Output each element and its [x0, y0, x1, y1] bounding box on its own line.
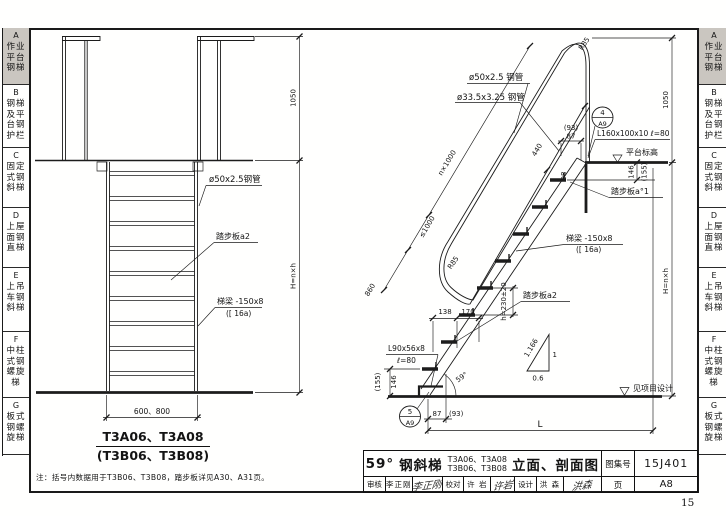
index-tab-letter: B [699, 88, 726, 98]
side-dim-base-offset-paren: (93) [449, 410, 464, 418]
index-tab-label: 作业平台钢梯 [6, 42, 27, 74]
index-tab-label: 板式钢螺旋梯 [6, 412, 27, 444]
index-tab-a: A 作业平台钢梯 [3, 28, 29, 85]
index-tab-f: F 中柱式钢螺旋梯 [699, 332, 726, 398]
index-tab-d: D 上屋面钢直梯 [3, 208, 29, 268]
index-tab-label: 固定式钢斜梯 [704, 162, 725, 194]
side-dim-step-going-2: 170 [461, 308, 474, 316]
index-tab-d: D 上屋面钢直梯 [699, 208, 726, 268]
side-dim-tread-width: 98 [560, 172, 568, 181]
side-dim-slope-total: n×1000 [437, 149, 458, 177]
index-tab-letter: E [3, 271, 29, 281]
sheet-title: 59° 钢斜梯 T3A06、T3A08 T3B06、T3B08 立面、剖面图 [364, 451, 602, 476]
index-tab-letter: F [3, 335, 29, 345]
side-dim-rail-height: 1050 [662, 91, 670, 109]
detail-ref-bottom-number: 5 [408, 408, 412, 416]
side-dim-base-offset: 87 [433, 410, 442, 418]
sheet-title-models-2: T3B06、T3B08 [448, 464, 507, 473]
front-dim-total-height: H=n×h [290, 263, 298, 289]
sheet-title-suffix: 立面、剖面图 [512, 454, 599, 474]
reviewer-name: 李正刚 [386, 477, 413, 492]
index-tab-e: E 上吊车钢斜梯 [3, 268, 29, 332]
index-tab-b: B 钢梯及平台钢护栏 [3, 85, 29, 148]
side-radius-bottom: R85 [446, 255, 460, 271]
side-dim-slope-bottom: 860 [363, 282, 377, 298]
detail-ref-bottom-sheet: A9 [406, 419, 415, 427]
side-base-angle-label-1: L90x56x8 [388, 344, 425, 353]
side-middle-rail-label: ø33.5x3.25 钢管 [457, 92, 525, 103]
index-tab-label: 上吊车钢斜梯 [6, 282, 27, 314]
sheet-title-product: 钢斜梯 [399, 454, 443, 474]
title-block: 59° 钢斜梯 T3A06、T3A08 T3B06、T3B08 立面、剖面图 图… [363, 450, 698, 493]
page-label: 页 [602, 477, 636, 492]
index-tab-e: E 上吊车钢斜梯 [699, 268, 726, 332]
front-handrail-pipe-label: ø50x2.5钢管 [209, 174, 261, 185]
left-page-index: A 作业平台钢梯 B 钢梯及平台钢护栏 C 固定式钢斜梯 D 上屋面钢直梯 E … [3, 28, 29, 455]
side-dim-total-height: H=n×h [662, 268, 670, 294]
side-ratio-hyp: 1.166 [523, 337, 540, 359]
index-tab-label: 钢梯及平台钢护栏 [704, 99, 725, 141]
detail-ref-top-sheet: A9 [598, 120, 607, 128]
designer-signature: 洪森 [564, 477, 602, 492]
side-handrail-pipe-label: ø50x2.5 钢管 [469, 72, 523, 83]
index-tab-letter: G [3, 401, 29, 411]
side-dim-step-going-1: 138 [438, 308, 451, 316]
index-tab-label: 作业平台钢梯 [704, 42, 725, 74]
index-tab-label: 上屋面钢直梯 [6, 222, 27, 254]
side-top-angle-label: L160x100x10 ℓ=80 [597, 129, 670, 138]
sheet-number: 15 [681, 497, 694, 509]
index-tab-a: A 作业平台钢梯 [699, 28, 726, 85]
index-tab-label: 上屋面钢直梯 [704, 222, 725, 254]
index-tab-letter: B [3, 88, 29, 98]
model-line-1: T3A06、T3A08 [96, 429, 209, 447]
side-dim-total-run: L [537, 420, 542, 430]
side-dim-top-drop-paren: (155) [641, 162, 649, 181]
sheet-title-angle: 59° [366, 456, 395, 472]
model-line-2: (T3B06、T3B08) [88, 448, 218, 463]
index-tab-label: 钢梯及平台钢护栏 [6, 99, 27, 141]
reviewer-signature: 李正刚 [413, 477, 443, 492]
index-tab-letter: C [699, 151, 726, 161]
side-dim-top-offset: 87 [567, 133, 576, 141]
title-block-row-2: 审核 李正刚 李正刚 校对 许 岩 许岩 设计 洪 森 洪森 页 A8 [364, 477, 697, 492]
front-elevation-labels: ø50x2.5钢管 踏步板a2 梯梁 -150x8 ([ 16a) 1050 H… [134, 89, 298, 416]
atlas-number: 15J401 [635, 451, 697, 476]
side-dim-angle: 59° [454, 371, 469, 385]
front-tread-label: 踏步板a2 [216, 231, 250, 241]
index-tab-g: G 板式钢螺旋梯 [699, 398, 726, 455]
index-tab-letter: A [699, 31, 726, 41]
index-tab-letter: C [3, 151, 29, 161]
side-dim-step-rise: h=230±20 [500, 282, 508, 320]
drawing-sheet: ø50x2.5钢管 踏步板a2 梯梁 -150x8 ([ 16a) 1050 H… [0, 0, 726, 516]
side-dim-bottom-rise: 146 [390, 375, 398, 389]
front-stringer-label-2: ([ 16a) [226, 309, 251, 318]
side-tread-top-label: 踏步板a°1 [611, 186, 649, 196]
side-dim-top-offset-paren: (93) [564, 124, 579, 132]
index-tab-letter: F [699, 335, 726, 345]
index-tab-letter: A [3, 31, 29, 41]
designer-role: 设计 [515, 477, 537, 492]
checker-signature: 许岩 [491, 477, 515, 492]
reviewer-role: 审核 [364, 477, 386, 492]
front-dim-width: 600、800 [134, 407, 170, 416]
index-tab-c: C 固定式钢斜梯 [699, 148, 726, 208]
index-tab-label: 上吊车钢斜梯 [704, 282, 725, 314]
side-ratio-run: 0.6 [532, 375, 544, 383]
index-tab-label: 中柱式钢螺旋梯 [6, 346, 27, 388]
side-stringer-label-2: ([ 16a) [576, 245, 601, 254]
side-base-angle-label-2: ℓ=80 [396, 356, 416, 365]
front-dim-rail-height: 1050 [290, 89, 298, 107]
signature-text: 李正刚 [413, 477, 443, 492]
designer-name: 洪 森 [537, 477, 564, 492]
front-stringer-label-1: 梯梁 -150x8 [217, 296, 264, 306]
side-ratio-rise: 1 [553, 351, 557, 359]
index-tab-b: B 钢梯及平台钢护栏 [699, 85, 726, 148]
side-radius-top: R85 [577, 36, 591, 52]
sheet-title-models: T3A06、T3A08 T3B06、T3B08 [448, 455, 507, 473]
front-elevation-linework [35, 34, 303, 422]
index-tab-label: 板式钢螺旋梯 [704, 412, 725, 444]
signature-text: 洪森 [571, 477, 593, 492]
side-dim-rail-segment: 440 [530, 142, 544, 158]
footnote: 注：括号内数据用于T3B06、T3B08，踏步板详见A30、A31页。 [36, 472, 356, 483]
side-dim-slope-rest: ≤1000 [418, 215, 437, 239]
checker-name: 许 岩 [464, 477, 491, 492]
side-ground-note: 见项目设计 [633, 383, 673, 393]
index-tab-g: G 板式钢螺旋梯 [3, 398, 29, 455]
index-tab-letter: E [699, 271, 726, 281]
page-number: A8 [635, 477, 697, 492]
atlas-number-label: 图集号 [602, 451, 636, 476]
index-tab-f: F 中柱式钢螺旋梯 [3, 332, 29, 398]
index-tab-letter: G [699, 401, 726, 411]
index-tab-letter: D [699, 211, 726, 221]
detail-ref-top-number: 4 [600, 109, 605, 117]
title-block-row-1: 59° 钢斜梯 T3A06、T3A08 T3B06、T3B08 立面、剖面图 图… [364, 451, 697, 477]
index-tab-label: 固定式钢斜梯 [6, 162, 27, 194]
signature-text: 许岩 [492, 477, 514, 492]
side-dim-top-drop: 146 [628, 165, 636, 179]
index-tab-letter: D [3, 211, 29, 221]
side-dim-bottom-rise-paren: (155) [374, 372, 382, 391]
model-designation: T3A06、T3A08 (T3B06、T3B08) [88, 429, 218, 463]
checker-role: 校对 [443, 477, 465, 492]
side-tread-label: 踏步板a2 [523, 290, 557, 300]
side-platform-level-label: 平台标高 [626, 147, 658, 157]
side-stringer-label-1: 梯梁 -150x8 [566, 233, 613, 243]
index-tab-c: C 固定式钢斜梯 [3, 148, 29, 208]
right-page-index: A 作业平台钢梯 B 钢梯及平台钢护栏 C 固定式钢斜梯 D 上屋面钢直梯 E … [699, 28, 726, 455]
index-tab-label: 中柱式钢螺旋梯 [704, 346, 725, 388]
sheet-title-models-1: T3A06、T3A08 [448, 455, 507, 464]
